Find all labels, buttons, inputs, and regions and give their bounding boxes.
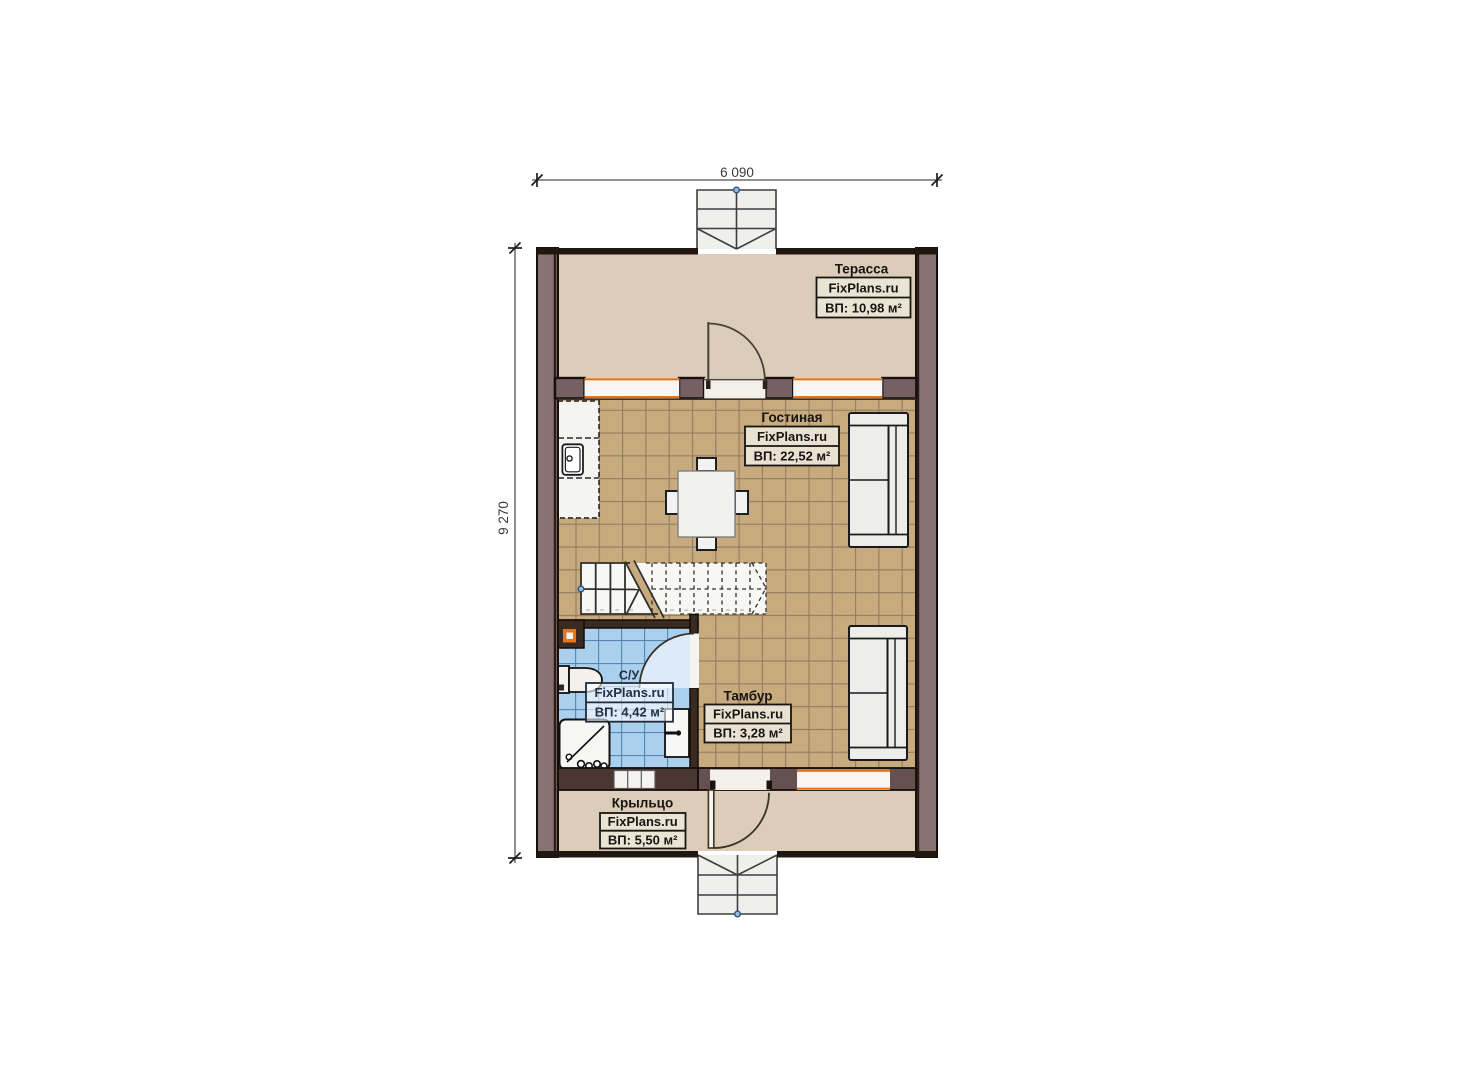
svg-text:Терасса: Терасса (835, 262, 889, 277)
svg-text:ВП: 10,98 м²: ВП: 10,98 м² (825, 300, 902, 315)
svg-text:FixPlans.ru: FixPlans.ru (608, 814, 678, 829)
svg-text:FixPlans.ru: FixPlans.ru (713, 706, 783, 721)
svg-text:FixPlans.ru: FixPlans.ru (828, 280, 898, 295)
svg-text:6 090: 6 090 (720, 165, 754, 180)
svg-text:FixPlans.ru: FixPlans.ru (594, 685, 664, 700)
svg-text:Гостиная: Гостиная (761, 410, 822, 425)
svg-text:ВП: 4,42 м²: ВП: 4,42 м² (595, 705, 665, 720)
svg-text:9 270: 9 270 (496, 501, 511, 535)
svg-text:С/У: С/У (619, 669, 640, 683)
svg-text:ВП: 3,28 м²: ВП: 3,28 м² (713, 726, 783, 741)
svg-text:FixPlans.ru: FixPlans.ru (757, 429, 827, 444)
svg-text:Тамбур: Тамбур (724, 689, 773, 704)
svg-text:ВП: 22,52 м²: ВП: 22,52 м² (754, 449, 831, 464)
svg-text:Крыльцо: Крыльцо (612, 796, 673, 811)
svg-text:ВП: 5,50 м²: ВП: 5,50 м² (608, 833, 678, 848)
